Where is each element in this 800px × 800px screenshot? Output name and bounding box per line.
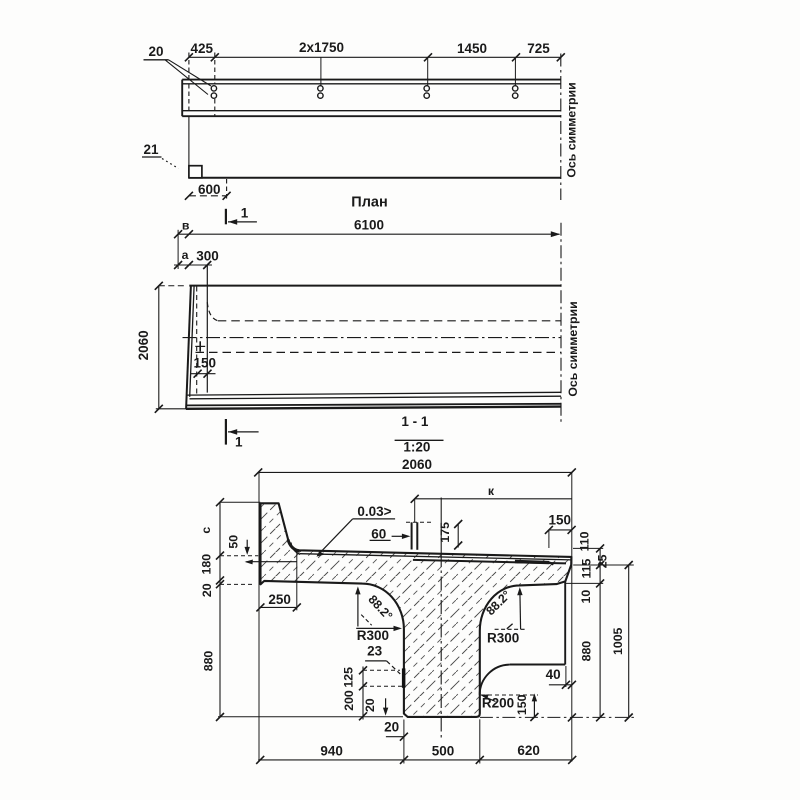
svg-text:23: 23 [367,644,383,659]
svg-text:40: 40 [546,667,561,682]
svg-text:880: 880 [579,641,593,662]
svg-text:940: 940 [320,743,343,758]
svg-text:20: 20 [384,720,399,735]
svg-text:20: 20 [148,44,163,59]
svg-text:21: 21 [143,142,159,157]
svg-text:Ось симметрии: Ось симметрии [565,82,579,177]
svg-text:a: a [182,248,189,262]
svg-text:1450: 1450 [457,41,487,56]
svg-text:110: 110 [577,531,591,551]
svg-text:1:20: 1:20 [403,439,430,454]
svg-text:180: 180 [200,554,214,575]
svg-text:115: 115 [580,559,594,579]
svg-text:175: 175 [438,522,452,543]
svg-text:300: 300 [196,249,219,264]
svg-text:c: c [199,527,213,534]
svg-text:1005: 1005 [611,627,625,655]
svg-text:R300: R300 [487,631,519,646]
svg-text:20: 20 [200,583,214,597]
svg-text:1: 1 [235,435,243,450]
svg-text:0.03>: 0.03> [357,504,391,519]
svg-text:150: 150 [515,694,529,715]
svg-text:880: 880 [202,651,216,672]
svg-text:10: 10 [579,590,593,604]
svg-text:150: 150 [194,356,217,371]
svg-text:2060: 2060 [402,457,432,472]
svg-text:1 - 1: 1 - 1 [401,414,429,429]
svg-text:25: 25 [596,554,610,568]
svg-text:50: 50 [227,535,241,549]
svg-text:План: План [351,195,387,211]
svg-text:250: 250 [268,592,291,607]
svg-text:1: 1 [241,206,249,221]
svg-text:Ось симметрии: Ось симметрии [566,301,580,396]
svg-text:150: 150 [549,512,572,527]
svg-text:в: в [182,219,190,233]
svg-text:2x1750: 2x1750 [299,40,344,55]
svg-text:500: 500 [432,744,455,759]
svg-text:R300: R300 [357,628,389,643]
svg-text:к: к [488,484,495,498]
svg-text:2060: 2060 [136,330,151,360]
svg-text:20: 20 [363,698,377,712]
svg-text:600: 600 [198,182,221,197]
svg-text:6100: 6100 [354,218,384,233]
svg-text:725: 725 [527,41,550,56]
svg-text:125: 125 [342,667,356,688]
svg-text:60: 60 [371,526,386,541]
svg-text:200: 200 [342,690,356,711]
svg-text:620: 620 [517,743,540,758]
svg-text:425: 425 [191,41,214,56]
